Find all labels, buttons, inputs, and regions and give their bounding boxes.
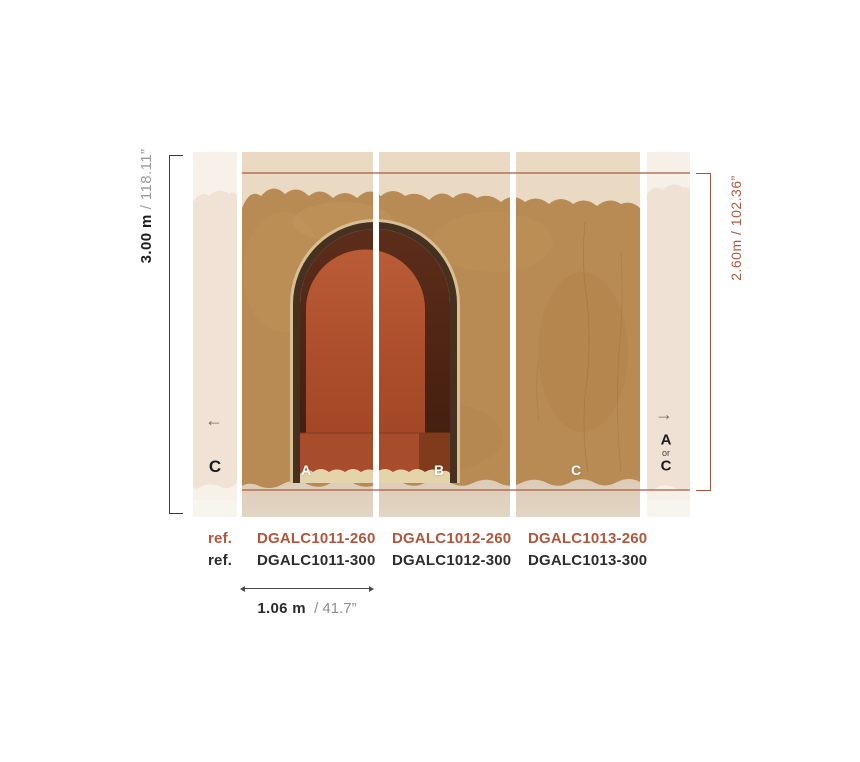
wallpaper-dimension-diagram: 3.00 m / 118.11” 2.60m / 102.36” ← C → A… (0, 0, 860, 762)
ref-label: ref. (208, 552, 234, 569)
full-height-bracket (169, 155, 183, 514)
panel-width-imperial: / 41.7” (314, 600, 357, 617)
panel-letter-b: B (434, 462, 444, 478)
ref-code: DGALC1013-300 (528, 552, 647, 569)
ref-row-300: ref. DGALC1011-300 DGALC1012-300 DGALC10… (0, 552, 860, 569)
ref-code: DGALC1012-300 (392, 552, 511, 569)
panel-width-dimension-line (242, 588, 372, 589)
panel-width-dimension-label: 1.06 m / 41.7” (227, 600, 387, 617)
right-strip-option-c: C (661, 458, 672, 475)
full-height-dimension-label: 3.00 m / 118.11” (135, 96, 157, 316)
panel-letter-c: C (571, 462, 581, 478)
ref-label: ref. (208, 530, 234, 547)
ref-code: DGALC1013-260 (528, 530, 647, 547)
ref-row-260: ref. DGALC1011-260 DGALC1012-260 DGALC10… (0, 530, 860, 547)
ref-code: DGALC1012-260 (392, 530, 511, 547)
panel-width-metric: 1.06 m (257, 600, 306, 617)
design-height-bracket (696, 173, 711, 491)
dimension-arrow-right-icon (369, 586, 374, 592)
ref-code: DGALC1011-260 (257, 530, 376, 547)
left-extension-arrow-icon: ← (205, 411, 223, 429)
design-height-dimension-label: 2.60m / 102.36” (725, 118, 747, 338)
right-strip-option-separator: or (662, 448, 670, 458)
full-height-metric: 3.00 m (138, 214, 155, 263)
panel-letter-a: A (301, 462, 311, 478)
dimension-arrow-left-icon (240, 586, 245, 592)
right-strip-option-a: A (661, 432, 672, 449)
left-strip-letter: C (209, 457, 221, 477)
ref-code: DGALC1011-300 (257, 552, 376, 569)
right-extension-arrow-icon: → (655, 405, 673, 423)
full-height-imperial: / 118.11” (138, 149, 155, 210)
